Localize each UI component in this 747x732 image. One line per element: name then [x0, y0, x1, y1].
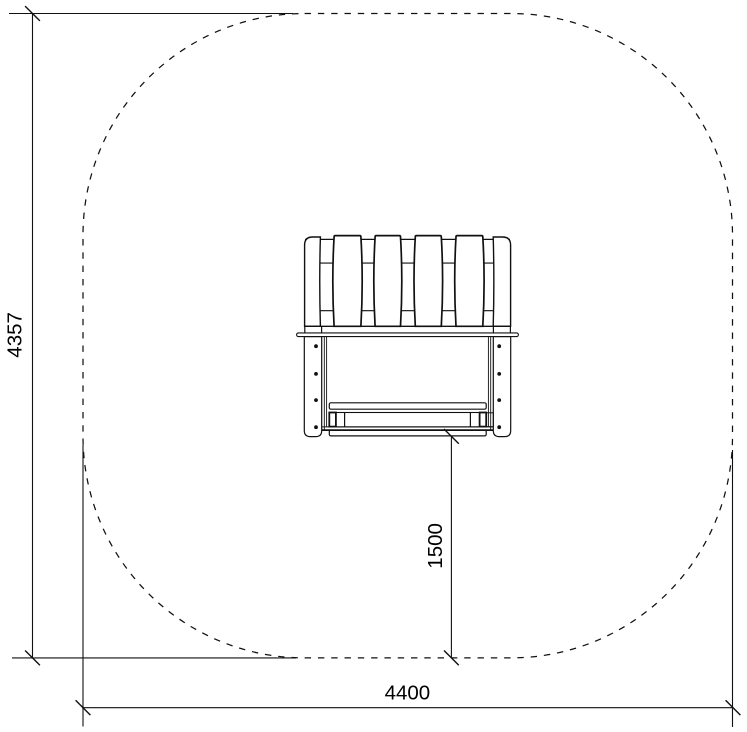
- svg-text:4357: 4357: [4, 312, 27, 358]
- svg-text:1500: 1500: [424, 523, 447, 569]
- svg-text:4400: 4400: [385, 681, 431, 704]
